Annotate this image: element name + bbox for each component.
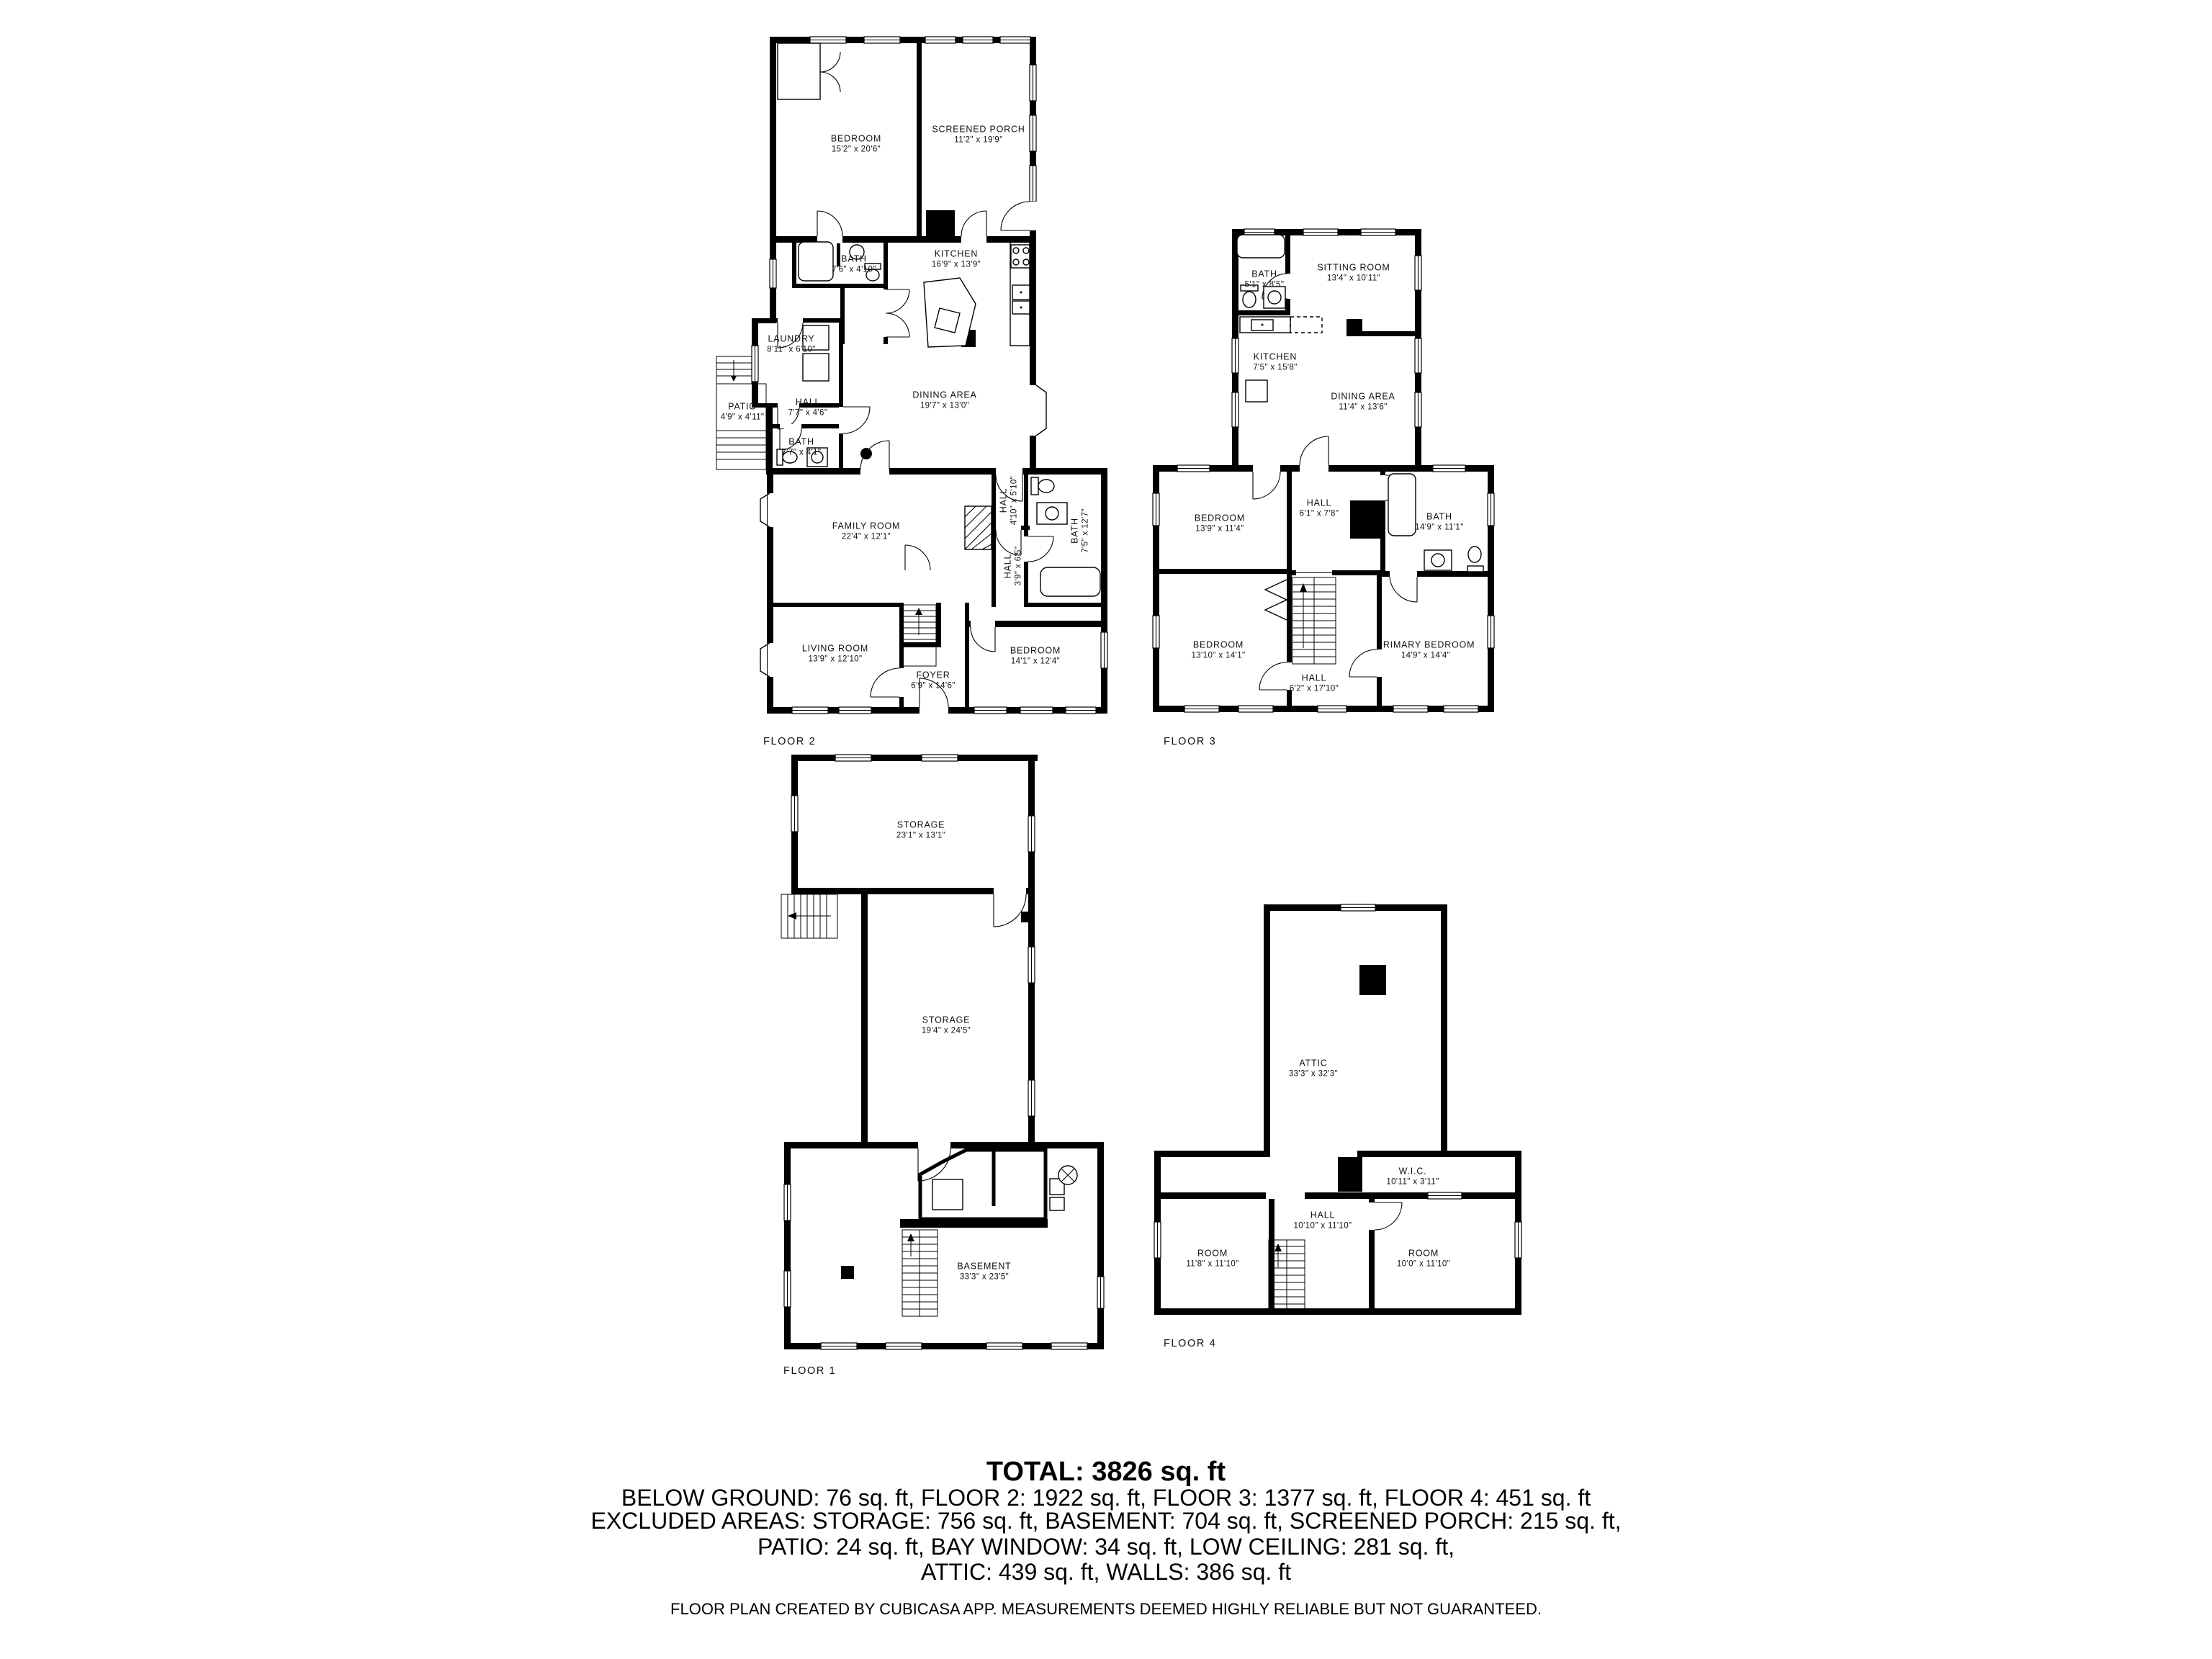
- room-label-kitchen-f3: KITCHEN7'5" x 15'8": [1253, 351, 1297, 373]
- room-label-bedroom1-f3: BEDROOM13'9" x 11'4": [1195, 512, 1245, 534]
- floor-4-label: FLOOR 4: [1164, 1338, 1216, 1349]
- room-label-sitting-room: SITTING ROOM13'4" x 10'11": [1317, 261, 1390, 284]
- floor-3-label: FLOOR 3: [1164, 736, 1216, 747]
- room-label-bath1-f2: BATH7'6" x 4'10": [832, 253, 876, 275]
- room-label-bedroom-f2: BEDROOM15'2" x 20'6": [831, 132, 881, 155]
- room-label-living-room: LIVING ROOM13'9" x 12'10": [802, 642, 868, 665]
- room-label-hall-f4: HALL10'10" x 11'10": [1293, 1209, 1352, 1231]
- summary-line-2: EXCLUDED AREAS: STORAGE: 756 sq. ft, BAS…: [0, 1508, 2212, 1534]
- floor1-windows: [784, 755, 1104, 1349]
- room-label-hall3-f2: HALL3'9" x 6'5": [1002, 547, 1024, 586]
- floor1-basement-stairs-icon: [902, 1230, 938, 1316]
- room-label-bedroom2-f3: BEDROOM13'10" x 14'1": [1191, 639, 1245, 661]
- room-label-hall2-f2: HALL4'10" x 5'10": [997, 476, 1020, 525]
- room-label-kitchen-f2: KITCHEN16'9" x 13'9": [932, 248, 981, 270]
- summary-line-3: PATIO: 24 sq. ft, BAY WINDOW: 34 sq. ft,…: [0, 1534, 2212, 1560]
- room-label-bath1-f3: BATH5'1" x 8'5": [1245, 268, 1285, 290]
- floor-3-drawing: [1145, 216, 1527, 749]
- floor3-fixtures: [1237, 235, 1483, 620]
- room-label-dining-area-f2: DINING AREA19'7" x 13'0": [912, 389, 976, 411]
- room-label-foyer: FOYER6'9" x 14'6": [911, 669, 955, 691]
- room-label-bath3-f2: BATH7'5" x 12'7": [1069, 508, 1091, 552]
- room-label-room2-f4: ROOM10'0" x 11'10": [1397, 1247, 1450, 1269]
- total-area-text: TOTAL: 3826 sq. ft: [0, 1457, 2212, 1488]
- room-label-laundry: LAUNDRY8'11" x 6'10": [767, 333, 815, 355]
- floor-1-drawing: [778, 752, 1116, 1372]
- summary-line-4: ATTIC: 439 sq. ft, WALLS: 386 sq. ft: [0, 1559, 2212, 1586]
- floor2-stairs-icon: [902, 605, 936, 666]
- floor1-furnace-room: [900, 1150, 1064, 1228]
- floor1-walls: [784, 755, 1104, 1349]
- room-label-primary-bedroom: PRIMARY BEDROOM14'9" x 14'4": [1377, 639, 1475, 661]
- room-label-hall1-f3: HALL6'1" x 7'8": [1300, 497, 1339, 519]
- room-label-bath2-f3: BATH14'9" x 11'1": [1415, 511, 1463, 533]
- floor-1-label: FLOOR 1: [783, 1365, 836, 1377]
- room-label-screened-porch: SCREENED PORCH11'2" x 19'9": [932, 123, 1025, 145]
- floor4-black-elements: [1338, 965, 1386, 1192]
- room-label-hall2-f3: HALL6'2" x 17'10": [1290, 672, 1339, 694]
- room-label-wic: W.I.C.10'11" x 3'11": [1386, 1165, 1439, 1187]
- room-label-basement: BASEMENT33'3" x 23'5": [957, 1260, 1011, 1282]
- room-label-family-room: FAMILY ROOM22'4" x 12'1": [832, 520, 900, 542]
- room-label-room1-f4: ROOM11'8" x 11'10": [1186, 1247, 1238, 1269]
- room-label-attic: ATTIC33'3" x 32'3": [1289, 1057, 1338, 1079]
- room-label-storage1: STORAGE23'1" x 13'1": [896, 819, 945, 841]
- floor3-stairs-icon: [1292, 577, 1336, 664]
- floor-2-drawing: [709, 22, 1123, 734]
- floor3-black-elements: [1346, 319, 1382, 539]
- room-label-hall1-f2: HALL7'7" x 4'6": [788, 396, 828, 418]
- room-label-patio: PATIO4'9" x 4'11": [721, 400, 765, 423]
- room-label-dining-area-f3: DINING AREA11'4" x 13'6": [1331, 390, 1395, 413]
- room-label-bath2-f2: BATH7'7" x 4'1": [782, 436, 822, 458]
- disclaimer-text: FLOOR PLAN CREATED BY CUBICASA APP. MEAS…: [0, 1600, 2212, 1619]
- floor-plan-canvas: BEDROOM15'2" x 20'6" SCREENED PORCH11'2"…: [0, 0, 2212, 1659]
- floor4-windows: [1154, 904, 1521, 1258]
- room-label-storage2: STORAGE19'4" x 24'5": [922, 1014, 971, 1036]
- room-label-bedroom2-f2: BEDROOM14'1" x 12'4": [1010, 644, 1061, 667]
- floor-2-label: FLOOR 2: [763, 736, 816, 747]
- floor1-left-stairs-icon: [781, 894, 837, 938]
